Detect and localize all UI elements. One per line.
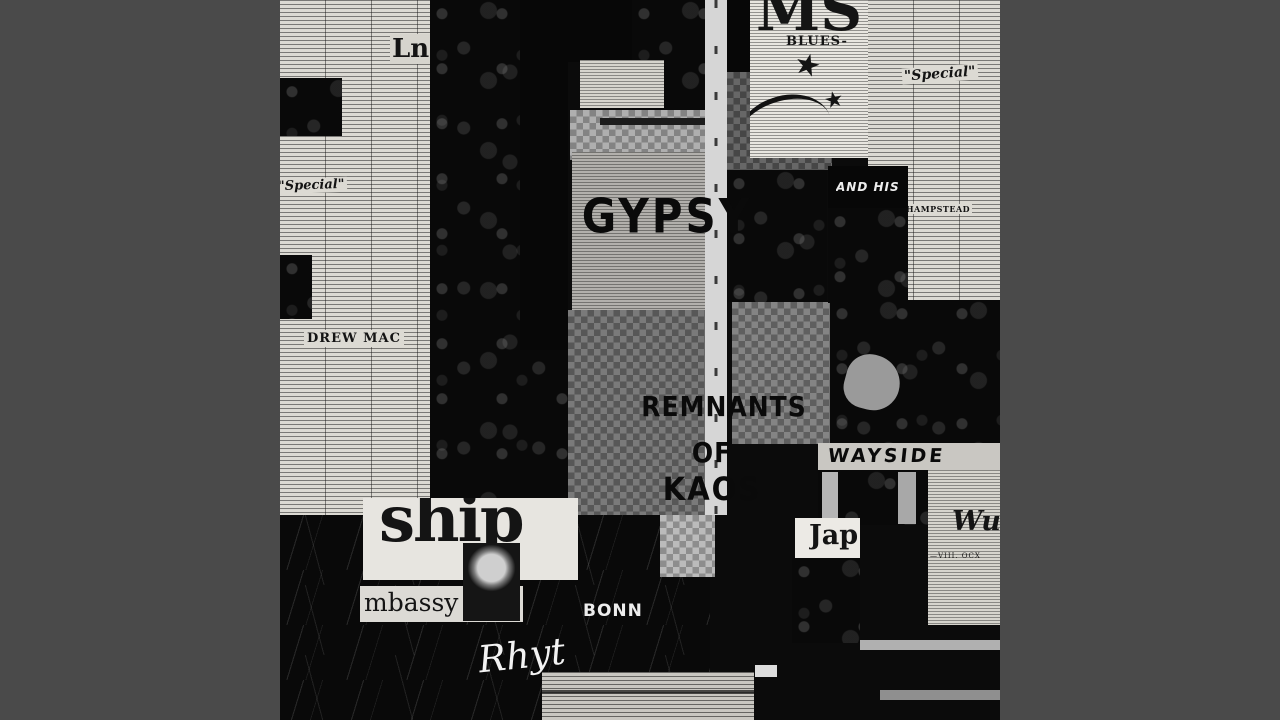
center-paper-scrap xyxy=(580,60,664,108)
blues-label: BLUES- xyxy=(786,34,848,49)
and-his-label: AND HIS xyxy=(836,180,900,194)
japan-clipping: Jap xyxy=(795,518,860,558)
bonn-label: BONN xyxy=(583,601,643,621)
roman-numeral-line: —VIII. OCX xyxy=(930,552,981,560)
ln-letters: Ln xyxy=(390,34,430,64)
letterbox-background: "Special" Ln DREW MAC MS BLUES- ★ ★ xyxy=(0,0,1280,720)
drew-mac-headline: DREW MAC xyxy=(304,330,404,347)
japan-photo xyxy=(792,558,860,643)
album-title: GYPSY xyxy=(582,189,752,244)
right-mid-collage xyxy=(732,302,830,444)
japan-headline: Jap xyxy=(809,520,858,551)
blackletter-wu: Wu xyxy=(952,506,1000,537)
light-post xyxy=(822,472,838,522)
and-his-banner: AND HIS xyxy=(828,166,908,208)
newspaper-portrait-patch xyxy=(280,255,312,319)
newspaper-photo-patch xyxy=(280,78,342,136)
light-post xyxy=(898,472,916,524)
artist-line-1: REMNANTS xyxy=(641,391,806,423)
newspaper-right-lower: Wu —VIII. OCX xyxy=(928,470,1000,625)
special-headline-left: "Special" xyxy=(280,177,347,194)
right-dark-mid xyxy=(830,300,1000,443)
light-strip xyxy=(860,640,1000,650)
wayside-label: WAYSIDE xyxy=(827,445,947,467)
special-headline-right: "Special" xyxy=(902,63,979,84)
dark-under-banner xyxy=(828,208,908,303)
ad-box xyxy=(542,672,754,720)
wayside-band: WAYSIDE xyxy=(818,443,1000,470)
star-icon: ★ xyxy=(790,45,825,85)
album-art: "Special" Ln DREW MAC MS BLUES- ★ ★ xyxy=(280,0,1000,720)
blues-poster: MS BLUES- ★ ★ xyxy=(750,0,868,158)
artist-line-2: OF xyxy=(692,437,732,469)
gray-blob xyxy=(839,349,906,416)
portrait-photo xyxy=(463,543,520,621)
newspaper-left: "Special" Ln DREW MAC xyxy=(280,0,430,515)
light-patch-bottom-center xyxy=(660,515,715,577)
white-speck xyxy=(755,665,777,677)
hampstead-label: HAMPSTEAD xyxy=(904,204,972,214)
light-strip xyxy=(880,690,1000,700)
black-column xyxy=(520,0,568,350)
artist-line-3: KAOS xyxy=(663,470,761,507)
